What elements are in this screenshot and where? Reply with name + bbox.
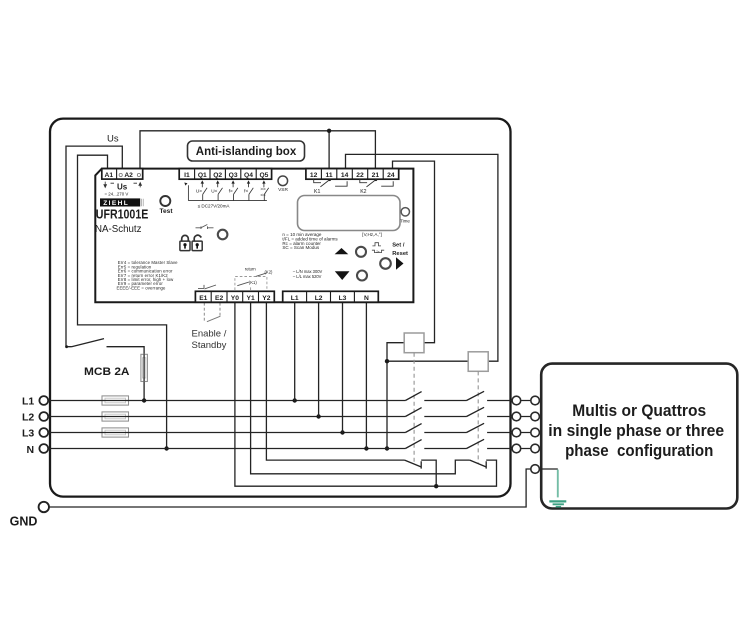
svg-text:24: 24 — [387, 172, 395, 179]
svg-text:L3: L3 — [22, 428, 34, 440]
svg-text:Y1: Y1 — [247, 295, 255, 302]
svg-text:in single phase or three: in single phase or three — [548, 422, 724, 440]
svg-text:NA-Schutz: NA-Schutz — [95, 224, 142, 235]
svg-text:Reset: Reset — [392, 251, 408, 257]
svg-text:Q5: Q5 — [259, 172, 268, 179]
svg-text:MCB 2A: MCB 2A — [84, 366, 130, 378]
svg-text:Standby: Standby — [192, 340, 227, 351]
svg-text:Test: Test — [159, 208, 173, 215]
svg-text:2s: 2s — [376, 249, 380, 253]
svg-text:E2: E2 — [215, 295, 223, 302]
svg-text:VSR: VSR — [278, 187, 288, 193]
svg-text:f<: f< — [244, 188, 248, 193]
svg-text:A1: A1 — [105, 172, 114, 179]
svg-text:phase configuration: phase configuration — [565, 442, 713, 460]
svg-text:L1: L1 — [291, 295, 299, 302]
svg-text:(K1): (K1) — [249, 280, 258, 285]
svg-text:12: 12 — [310, 172, 318, 179]
svg-text:Q4: Q4 — [244, 172, 253, 179]
svg-text:EEEE/-EEE = overrange: EEEE/-EEE = overrange — [117, 285, 167, 290]
svg-text:<<: << — [260, 192, 266, 197]
svg-text:Q3: Q3 — [229, 172, 238, 179]
svg-text:[V,Hz,A,°]: [V,Hz,A,°] — [362, 232, 382, 237]
svg-text:Q2: Q2 — [213, 172, 222, 179]
svg-text:11: 11 — [326, 172, 333, 179]
svg-text:return: return — [245, 267, 257, 272]
svg-text:Multis or Quattros: Multis or Quattros — [572, 402, 706, 420]
svg-text:A2: A2 — [124, 172, 133, 179]
svg-text:>>: >> — [260, 187, 266, 192]
svg-text:U<: U< — [211, 188, 217, 193]
svg-text:UFR1001E: UFR1001E — [96, 207, 149, 222]
svg-text:Anti-islanding box: Anti-islanding box — [196, 144, 297, 158]
svg-text:≤ DC27V/20mA: ≤ DC27V/20mA — [198, 203, 231, 208]
svg-text:Y2: Y2 — [262, 295, 270, 302]
svg-text:Y0: Y0 — [231, 295, 239, 302]
svg-text:= 24...270 V: = 24...270 V — [105, 191, 129, 196]
svg-text:Q1: Q1 — [198, 172, 207, 179]
svg-text:Us: Us — [107, 134, 119, 145]
svg-text:(K2): (K2) — [265, 269, 274, 274]
svg-text:N: N — [27, 444, 35, 456]
svg-text:Set /: Set / — [392, 243, 405, 249]
svg-text:GND: GND — [10, 514, 38, 528]
svg-text:Us: Us — [117, 183, 128, 192]
svg-text:Time: Time — [400, 218, 410, 223]
svg-text:E1: E1 — [199, 295, 207, 302]
svg-text:14: 14 — [341, 172, 349, 179]
svg-text:L2: L2 — [315, 295, 323, 302]
svg-text:N: N — [364, 295, 369, 302]
svg-text:Enable /: Enable / — [192, 329, 227, 340]
svg-text:21: 21 — [372, 172, 380, 179]
svg-text:L3: L3 — [339, 295, 347, 302]
svg-text:L1: L1 — [22, 396, 34, 408]
svg-text:I1: I1 — [184, 172, 190, 179]
svg-text:– L/L max 520V: – L/L max 520V — [293, 274, 322, 279]
svg-text:K2: K2 — [360, 189, 366, 195]
svg-text:22: 22 — [356, 172, 364, 179]
svg-text:f>: f> — [229, 188, 233, 193]
svg-text:U>: U> — [196, 188, 202, 193]
svg-text:K1: K1 — [314, 189, 320, 195]
svg-text:SC = Scan Modus: SC = Scan Modus — [282, 245, 319, 250]
svg-text:L2: L2 — [22, 412, 34, 424]
